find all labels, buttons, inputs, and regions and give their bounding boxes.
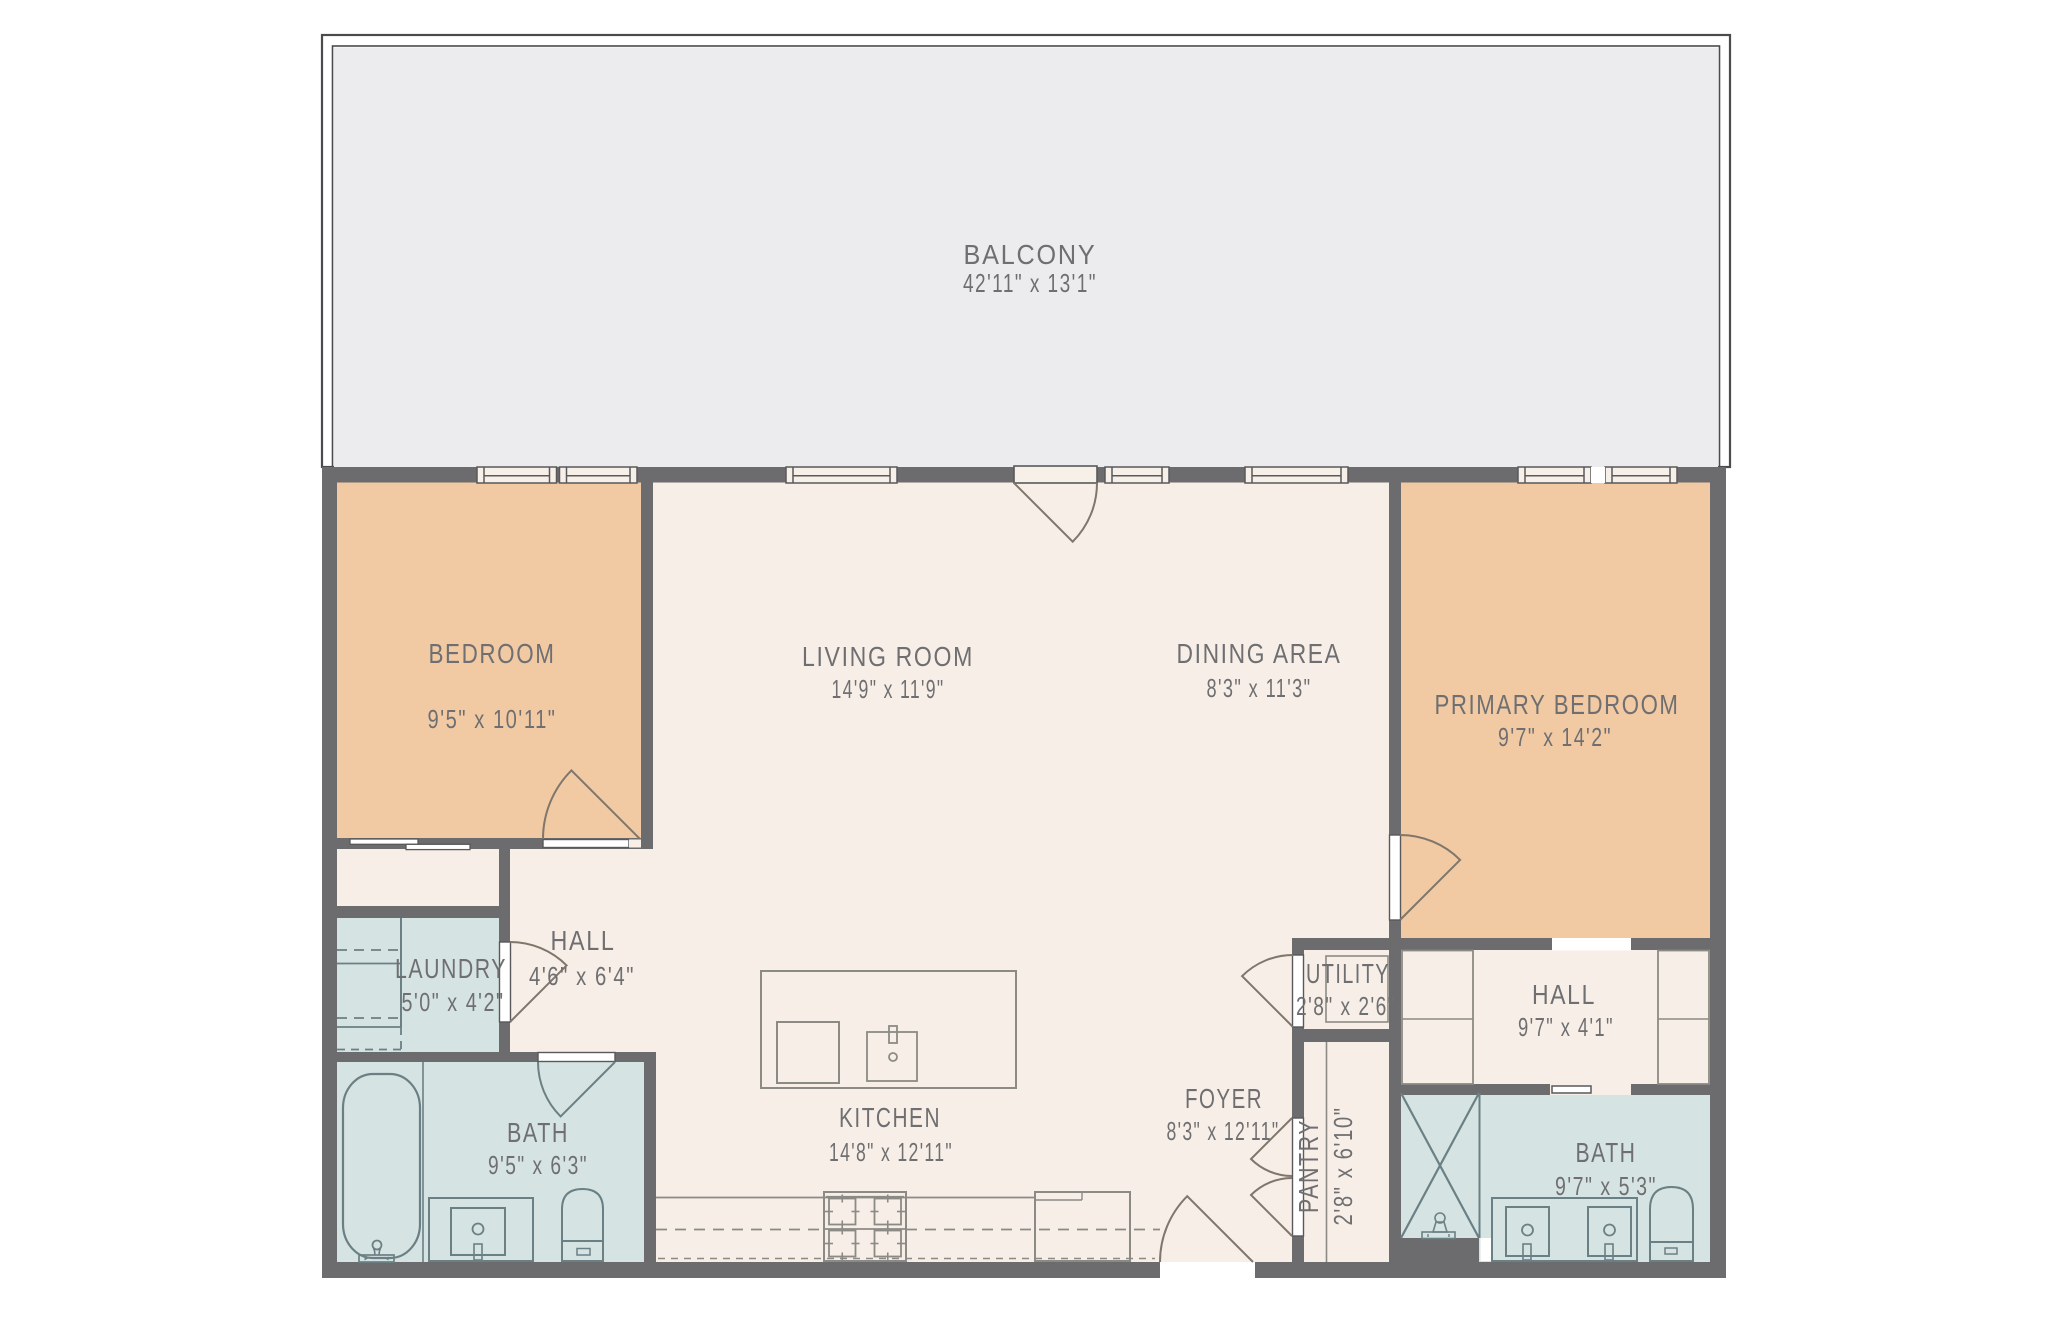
svg-text:42'11" x 13'1": 42'11" x 13'1" (963, 268, 1097, 298)
svg-text:14'8" x 12'11": 14'8" x 12'11" (829, 1137, 953, 1167)
svg-text:LAUNDRY: LAUNDRY (395, 953, 507, 984)
svg-text:PRIMARY BEDROOM: PRIMARY BEDROOM (1435, 689, 1680, 720)
svg-text:BEDROOM: BEDROOM (429, 638, 556, 669)
svg-text:DINING AREA: DINING AREA (1177, 638, 1342, 669)
svg-text:BATH: BATH (1576, 1137, 1637, 1168)
svg-text:BATH: BATH (507, 1117, 569, 1148)
svg-text:4'6" x 6'4": 4'6" x 6'4" (529, 961, 635, 991)
svg-text:9'5" x 6'3": 9'5" x 6'3" (488, 1150, 588, 1180)
svg-text:9'7" x 14'2": 9'7" x 14'2" (1498, 722, 1612, 752)
svg-text:9'7" x 5'3": 9'7" x 5'3" (1555, 1171, 1657, 1201)
svg-text:8'3" x 11'3": 8'3" x 11'3" (1207, 673, 1312, 703)
svg-text:HALL: HALL (1532, 979, 1596, 1010)
svg-text:5'0" x 4'2": 5'0" x 4'2" (402, 987, 505, 1017)
svg-text:BALCONY: BALCONY (964, 239, 1097, 270)
svg-text:KITCHEN: KITCHEN (839, 1102, 941, 1133)
svg-text:14'9" x 11'9": 14'9" x 11'9" (832, 674, 945, 704)
svg-text:9'5" x 10'11": 9'5" x 10'11" (428, 704, 557, 734)
svg-text:UTILITY: UTILITY (1306, 958, 1390, 989)
svg-text:LIVING ROOM: LIVING ROOM (802, 641, 974, 672)
svg-text:2'8" x 2'6": 2'8" x 2'6" (1296, 991, 1396, 1021)
svg-text:FOYER: FOYER (1185, 1083, 1263, 1114)
svg-text:HALL: HALL (551, 925, 616, 956)
svg-text:PANTRY: PANTRY (1293, 1119, 1324, 1213)
svg-text:8'3" x 12'11": 8'3" x 12'11" (1167, 1116, 1280, 1146)
svg-text:2'8" x 6'10": 2'8" x 6'10" (1328, 1107, 1358, 1226)
svg-text:9'7" x 4'1": 9'7" x 4'1" (1518, 1012, 1614, 1042)
